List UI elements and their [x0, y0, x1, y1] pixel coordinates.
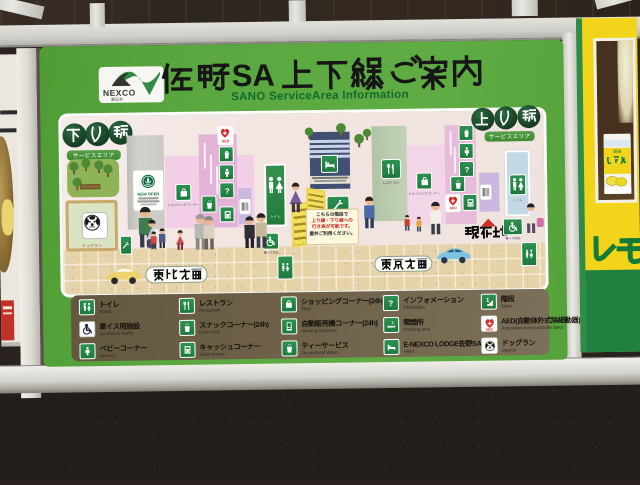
svg-text:SA: SA [231, 58, 275, 94]
